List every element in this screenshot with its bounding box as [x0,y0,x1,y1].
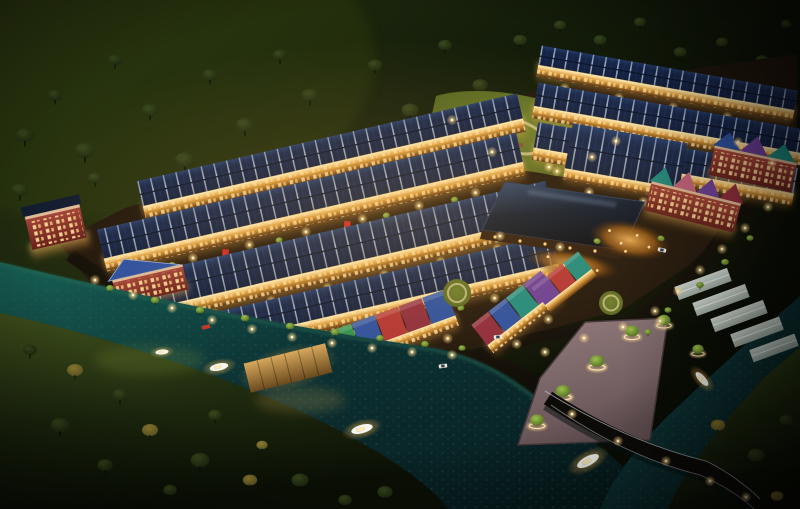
night-aerial-render [0,0,800,509]
corner-darkening [620,0,800,509]
scene-canvas [0,0,800,509]
